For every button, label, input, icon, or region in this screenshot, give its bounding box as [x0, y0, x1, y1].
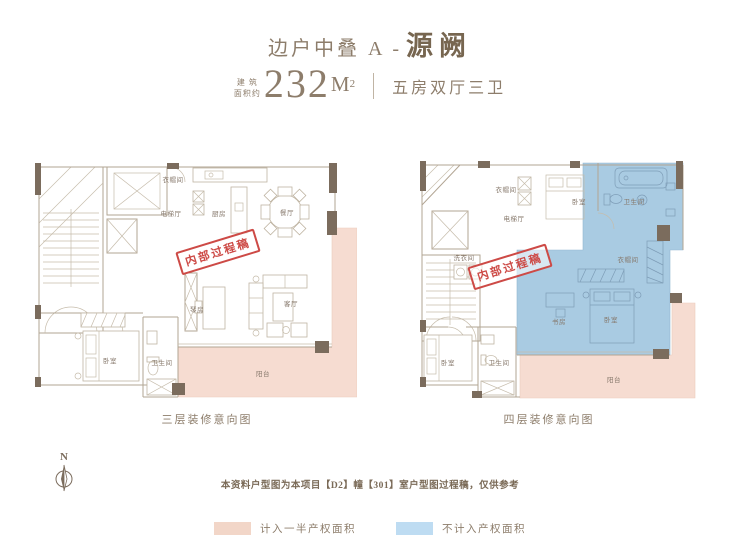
- area-unit: M: [331, 72, 350, 97]
- legend-item-half-area: 计入一半产权面积: [214, 521, 356, 536]
- stairwell: [422, 165, 480, 341]
- title-prefix: 边户中叠 A -: [268, 38, 402, 60]
- room-label-dining: 餐厅: [280, 208, 294, 217]
- area-legend: 计入一半产权面积 不计入产权面积: [0, 521, 740, 536]
- room-label-study: 书房: [552, 317, 566, 326]
- room-label-bedroom: 卧室: [103, 356, 117, 365]
- room-label-kitchen: 厨房: [212, 209, 226, 218]
- half-area-swatch: [214, 522, 251, 535]
- area-value: 232: [264, 64, 330, 104]
- legend-label-excluded-area: 不计入产权面积: [442, 521, 526, 536]
- page-title: 边户中叠 A - 源阙: [0, 24, 740, 63]
- room-label-elevator-hall: 电梯厅: [161, 209, 182, 218]
- room-label-balcony: 阳台: [256, 369, 270, 378]
- room-label-bathroom-lower: 卫生间: [489, 358, 510, 367]
- excluded-area-swatch: [396, 522, 433, 535]
- disclaimer-text: 本资料户型图为本项目【D2】幢【301】室户型图过程稿，仅供参考: [0, 477, 740, 491]
- kitchen-dining-furniture: [193, 168, 309, 237]
- living-furniture: [249, 275, 307, 337]
- room-label-elevator-hall: 电梯厅: [504, 214, 525, 223]
- area-row: 建 筑 面积约 232 M 2 五房双厅三卫: [0, 64, 740, 104]
- lower-bedroom-furniture: [424, 335, 472, 381]
- legend-item-excluded-area: 不计入产权面积: [396, 521, 526, 536]
- room-label-bathroom-top: 卫生间: [624, 197, 645, 206]
- room-label-closet: 衣帽间: [163, 175, 184, 184]
- stairwell: [39, 167, 103, 333]
- room-label-closet-right: 衣帽间: [618, 255, 639, 264]
- north-label: N: [50, 452, 78, 463]
- room-label-bedroom-master: 卧室: [604, 315, 618, 324]
- elevator-shaft: [107, 167, 167, 253]
- title-name: 源阙: [406, 31, 472, 61]
- area-prefix-line2: 面积约: [234, 89, 261, 100]
- upper-bedroom-furniture: [546, 175, 584, 219]
- floorplan-4f: 衣帽间 电梯厅 洗衣间 卧室 卫生间 衣帽间 书房 卧室 卧室 卫生间 阳台: [420, 155, 700, 403]
- room-label-bedroom-top: 卧室: [572, 197, 586, 206]
- room-label-laundry: 洗衣间: [454, 253, 475, 262]
- room-label-closet: 衣帽间: [496, 185, 517, 194]
- room-label-living: 客厅: [284, 299, 298, 308]
- room-spec: 五房双厅三卫: [392, 74, 506, 98]
- area-prefix: 建 筑 面积约: [234, 78, 261, 100]
- area-prefix-line1: 建 筑: [234, 78, 261, 89]
- floorplan-sheet: 边户中叠 A - 源阙 建 筑 面积约 232 M 2 五房双厅三卫: [0, 0, 740, 560]
- room-label-bathroom: 卫生间: [152, 358, 173, 367]
- caption-4f: 四层装修意向图: [449, 411, 649, 427]
- divider: [373, 73, 374, 99]
- legend-label-half-area: 计入一半产权面积: [260, 521, 356, 536]
- bedroom-furniture: [75, 313, 139, 381]
- caption-3f: 三层装修意向图: [107, 411, 307, 427]
- area-unit-sup: 2: [350, 78, 356, 90]
- room-label-piano: 琴房: [190, 305, 204, 314]
- room-label-bedroom-lower: 卧室: [441, 358, 455, 367]
- floorplan-3f: 衣帽间 电梯厅 厨房 餐厅 客厅 琴房 卧室 卫生间 阳台: [35, 155, 357, 403]
- room-label-balcony: 阳台: [607, 375, 621, 384]
